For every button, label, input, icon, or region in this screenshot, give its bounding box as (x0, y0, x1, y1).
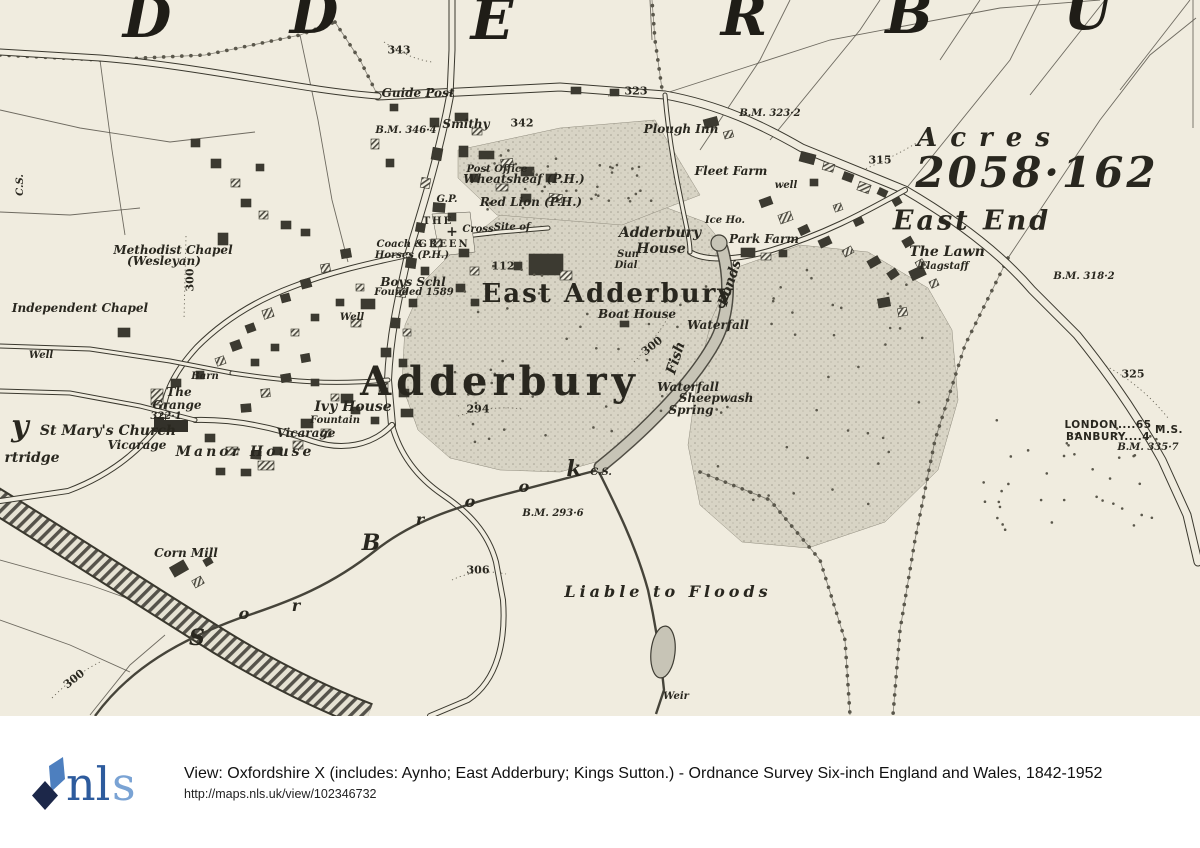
nls-logo-text-s: s (112, 757, 136, 811)
map-label: C.S. (590, 468, 612, 478)
map-label: St Mary's Church (40, 424, 176, 438)
map-label: East End (893, 208, 1051, 235)
nls-logo-light-shape (49, 757, 65, 792)
map-label: Ice Ho. (705, 216, 745, 226)
map-label: 300 (185, 269, 196, 292)
map-label: r (292, 598, 300, 614)
map-label: y (11, 412, 28, 442)
map-label: Plough Inn (644, 123, 719, 135)
map-label: U (1064, 0, 1113, 38)
map-label: Fish (664, 340, 688, 376)
map-label: Well (340, 313, 364, 323)
map-label: 315 (869, 155, 892, 166)
map-label: Boat House (598, 308, 676, 320)
map-label: 342 (511, 118, 534, 129)
map-label: Waterfall (687, 319, 749, 331)
map-label: Guide Post (382, 87, 455, 99)
map-label: Coach & (377, 240, 424, 250)
nls-logo: nl s (30, 744, 150, 820)
map-label: B.M. 335·7 (1117, 443, 1178, 453)
map-label: Fleet Farm (695, 165, 768, 177)
map-label: S (189, 627, 205, 649)
map-label: Smithy (442, 118, 489, 130)
map-label: 300 (640, 335, 665, 358)
map-label: Grange (152, 399, 201, 411)
page: DDERBUAcres2058·162East EndEast Adderbur… (0, 0, 1200, 848)
map-label: Liable to Floods (564, 584, 771, 600)
map-label: Independent Chapel (12, 302, 148, 314)
map-label: B.M. 293·6 (522, 509, 583, 519)
map-label: 322·1 (150, 412, 181, 422)
map-label: Flagstaff (919, 262, 968, 272)
map-label: G.P. (436, 195, 457, 205)
map-label: r (416, 512, 424, 528)
map-label: 300 (62, 668, 87, 691)
map-label: GREEN (418, 240, 469, 250)
map-label: LONDON....65 (1064, 420, 1151, 431)
map-label: East Adderbury (481, 281, 734, 307)
map-label: Founded 1589 (374, 288, 453, 298)
map-label: Adderbury (619, 226, 701, 240)
map-label: 2058·162 (915, 152, 1158, 194)
map-label: (Wesleyan) (127, 255, 201, 267)
nls-logo-text-nl: nl (66, 757, 110, 811)
map-label: Wheatsheaf (P.H.) (463, 173, 584, 185)
map-label: Red Lion (P.H.) (480, 196, 582, 208)
map-label: Spring (668, 404, 713, 416)
map-label: Manor House (176, 445, 315, 459)
map-label: Sun (617, 250, 639, 260)
map-label: Fountain (310, 416, 360, 426)
map-label: D (123, 0, 172, 46)
map-label: Vicarage (277, 427, 336, 439)
map-label: B.M. 323·2 (739, 109, 800, 119)
map-label: BANBURY....4 (1066, 432, 1150, 443)
map-label: Adderbury (360, 362, 640, 402)
map-label: k (566, 458, 581, 480)
view-title: View: Oxfordshire X (includes: Aynho; Ea… (184, 763, 1102, 785)
map-label: 323 (625, 86, 648, 97)
map-label: o (519, 479, 530, 495)
map-label: M.S. (1155, 425, 1183, 436)
view-url: http://maps.nls.uk/view/102346732 (184, 787, 1102, 801)
map-label: Ivy House (314, 400, 391, 414)
map-label: Dial (615, 261, 638, 271)
map-label: o (239, 606, 250, 622)
map-label: + (446, 225, 458, 239)
map-label: Vicarage (108, 439, 167, 451)
map-label: B (362, 532, 381, 554)
footer: nl s View: Oxfordshire X (includes: Aynh… (0, 716, 1200, 848)
map-labels: DDERBUAcres2058·162East EndEast Adderbur… (0, 0, 1200, 716)
map-label: Cross (462, 225, 493, 235)
map-label: House (636, 242, 686, 256)
map-label: 306 (467, 565, 490, 576)
map-label: Weir (663, 692, 689, 702)
map-label: The (166, 386, 191, 398)
map-label: o (465, 494, 476, 510)
map-label: D (290, 0, 339, 42)
map-label: 294 (467, 404, 490, 415)
map-label: Corn Mill (154, 547, 218, 559)
map-label: Horses (P.H.) (375, 251, 449, 261)
map-label: R (721, 0, 768, 44)
footer-meta: View: Oxfordshire X (includes: Aynho; Ea… (184, 763, 1102, 802)
map-label: Well (29, 351, 53, 361)
map-label: 325 (1122, 369, 1145, 380)
map-image: DDERBUAcres2058·162East EndEast Adderbur… (0, 0, 1200, 716)
map-label: B.M. 346·4 (375, 126, 436, 136)
map-label: B (885, 0, 932, 42)
map-label: Site of (494, 223, 530, 233)
map-label: 112 (492, 261, 515, 272)
map-label: B.M. 318·2 (1053, 272, 1114, 282)
map-label: Barn (191, 372, 218, 382)
map-label: rtridge (4, 451, 59, 465)
map-label: The Lawn (909, 245, 985, 259)
map-label: E (471, 0, 514, 48)
map-label: 343 (388, 45, 411, 56)
map-label: well (775, 181, 798, 191)
map-label: Park Farm (729, 233, 799, 245)
map-label: C.S. (16, 174, 26, 196)
